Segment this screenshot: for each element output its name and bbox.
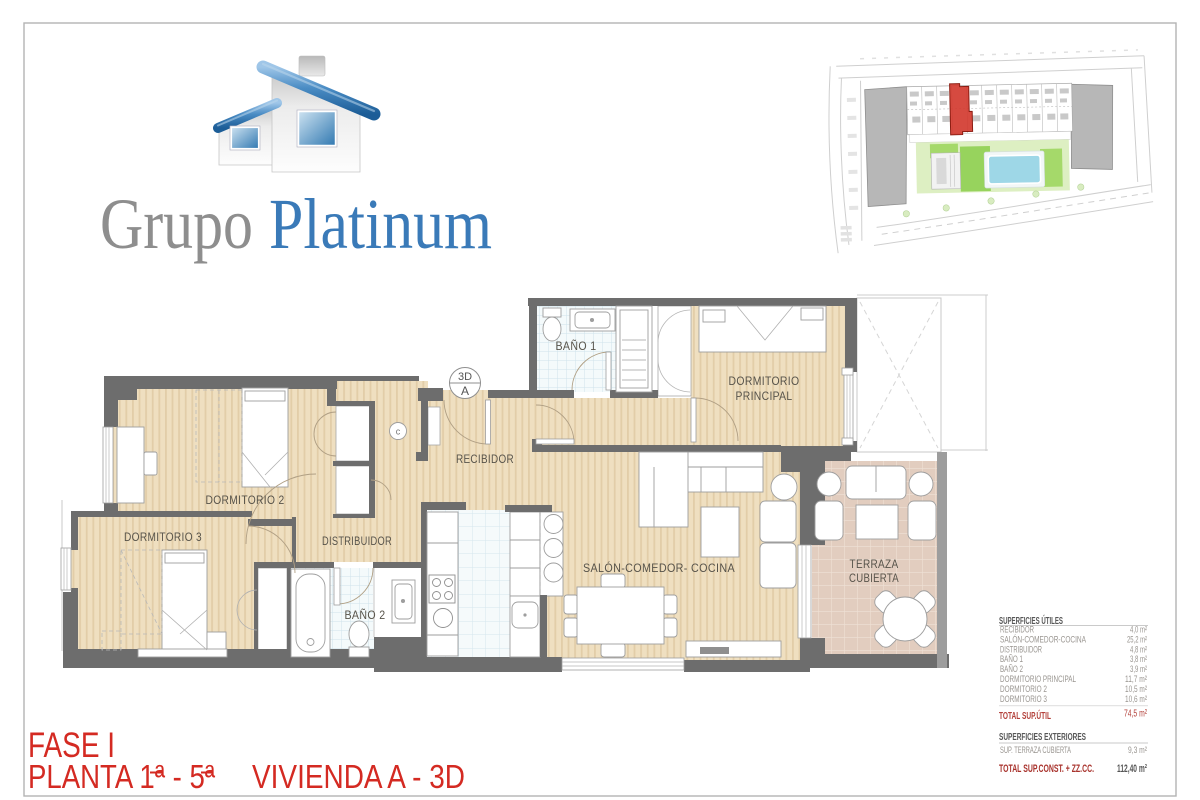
svg-text:DORMITORIO 3: DORMITORIO 3 <box>1000 694 1047 705</box>
svg-text:TOTAL SUP.ÚTIL: TOTAL SUP.ÚTIL <box>999 709 1051 722</box>
svg-text:SUPERFICIES EXTERIORES: SUPERFICIES EXTERIORES <box>999 731 1086 743</box>
svg-text:DORMITORIO 2: DORMITORIO 2 <box>206 493 285 507</box>
svg-text:PLANTA 1ª - 5ª: PLANTA 1ª - 5ª <box>28 758 216 795</box>
svg-text:CUBIERTA: CUBIERTA <box>849 571 899 585</box>
svg-text:BAÑO 2: BAÑO 2 <box>345 608 386 622</box>
svg-text:112,40 m²: 112,40 m² <box>1117 763 1147 775</box>
svg-text:BAÑO 1: BAÑO 1 <box>556 339 597 353</box>
svg-text:PRINCIPAL: PRINCIPAL <box>736 389 793 403</box>
svg-text:Platinum: Platinum <box>269 184 492 264</box>
svg-text:9,3 m²: 9,3 m² <box>1128 745 1147 756</box>
svg-text:SALÓN-COMEDOR- COCINA: SALÓN-COMEDOR- COCINA <box>583 560 735 575</box>
svg-text:3D: 3D <box>458 371 472 383</box>
svg-text:VIVIENDA A - 3D: VIVIENDA A - 3D <box>252 758 465 795</box>
svg-text:TERRAZA: TERRAZA <box>850 557 899 571</box>
svg-text:SUP. TERRAZA CUBIERTA: SUP. TERRAZA CUBIERTA <box>1000 745 1071 756</box>
svg-text:TOTAL SUP.CONST. + ZZ.CC.: TOTAL SUP.CONST. + ZZ.CC. <box>999 763 1094 775</box>
svg-text:DORMITORIO: DORMITORIO <box>729 374 800 388</box>
svg-text:Grupo: Grupo <box>100 184 253 264</box>
svg-text:c: c <box>396 427 401 437</box>
svg-text:A: A <box>461 384 469 398</box>
svg-text:10,6 m²: 10,6 m² <box>1125 694 1147 705</box>
svg-text:DORMITORIO 3: DORMITORIO 3 <box>124 530 202 544</box>
svg-text:DISTRIBUIDOR: DISTRIBUIDOR <box>322 534 392 548</box>
svg-text:74,5 m²: 74,5 m² <box>1124 709 1147 720</box>
svg-text:RECIBIDOR: RECIBIDOR <box>456 452 514 466</box>
